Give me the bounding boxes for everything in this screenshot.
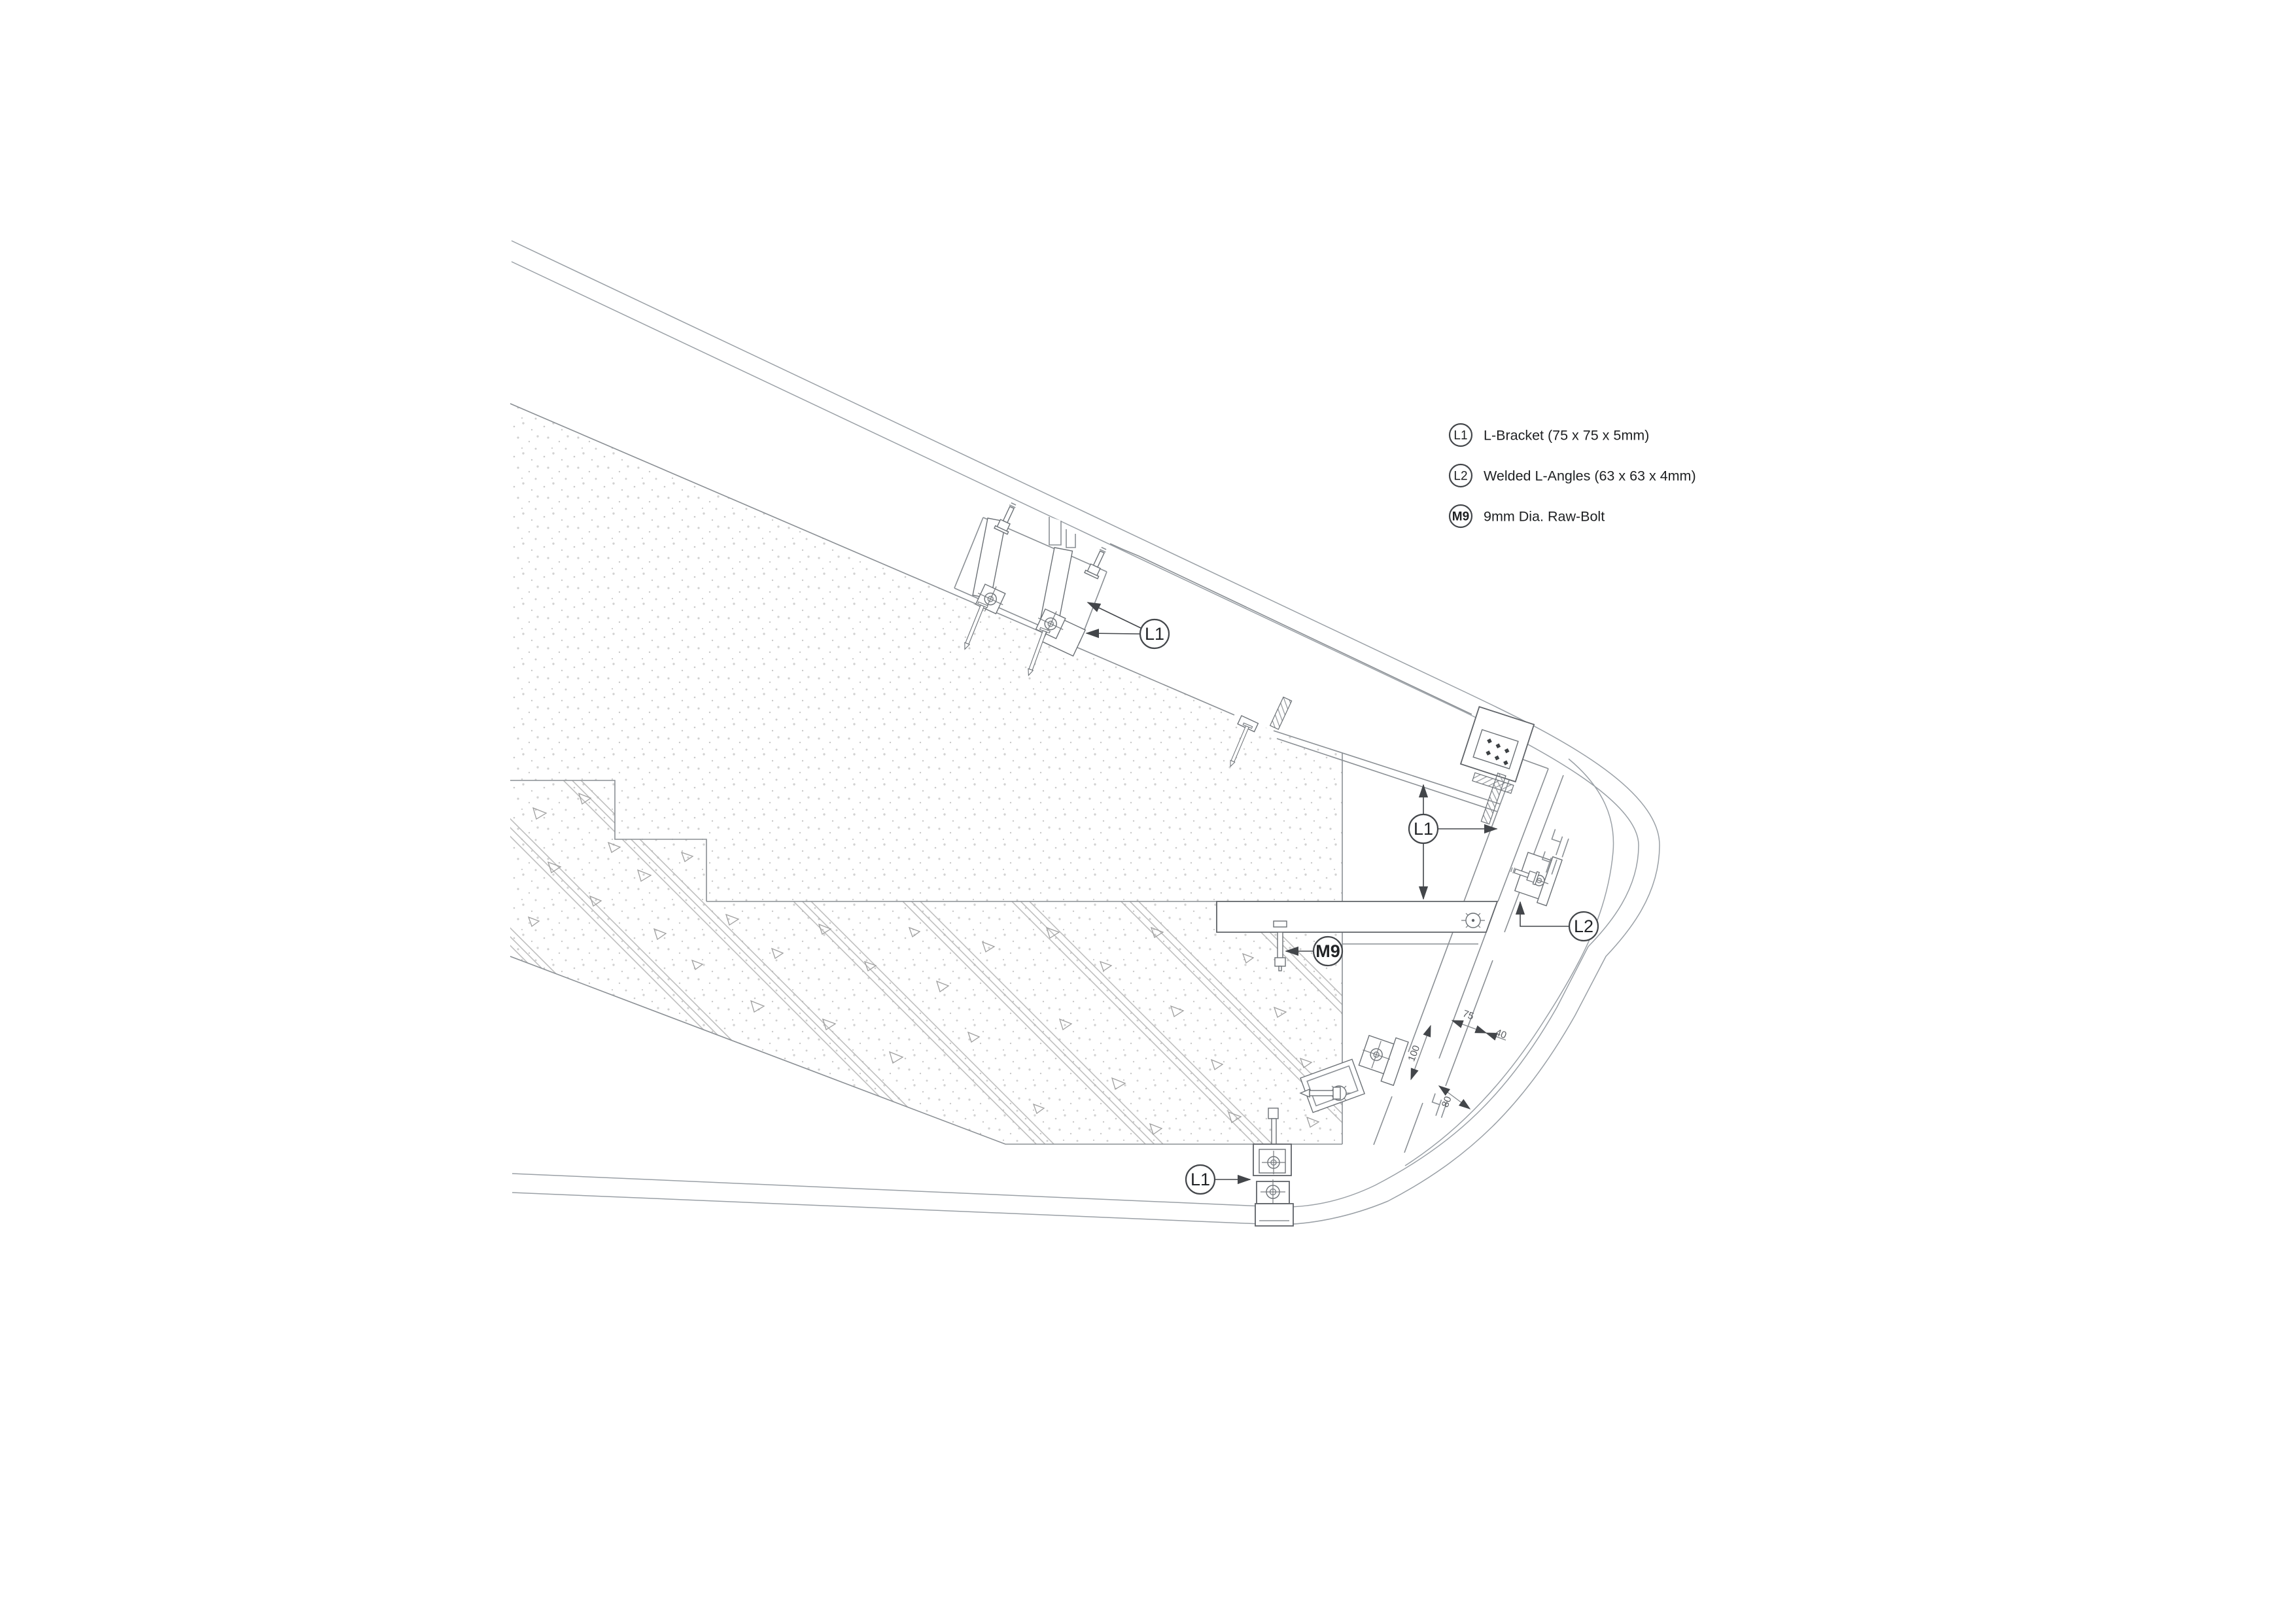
legend-item-m9: M9 9mm Dia. Raw-Bolt	[1450, 505, 1605, 527]
svg-text:75: 75	[1461, 1008, 1475, 1022]
svg-text:L1: L1	[1453, 429, 1467, 443]
dimension-100: 100	[1406, 1026, 1431, 1079]
svg-text:L1: L1	[1145, 624, 1164, 644]
svg-text:Welded L-Angles (63 x 63 x 4mm: Welded L-Angles (63 x 63 x 4mm)	[1484, 468, 1696, 484]
detail-drawing-canvas: 100 75 40 80 L1 L1 L2 M9 L1	[0, 0, 2296, 1623]
svg-text:L2: L2	[1574, 916, 1593, 936]
nose-inner-liner	[1405, 759, 1614, 1166]
callout-l1-top: L1	[1087, 602, 1169, 648]
dimension-75: 75	[1452, 1008, 1486, 1033]
inclined-member	[1374, 758, 1563, 1153]
callout-l1-nose: L1	[1409, 785, 1497, 899]
svg-text:L2: L2	[1453, 470, 1467, 483]
svg-text:M9: M9	[1452, 510, 1469, 524]
svg-text:80: 80	[1440, 1095, 1454, 1109]
stippled-concrete-region	[510, 404, 1342, 901]
svg-text:9mm Dia. Raw-Bolt: 9mm Dia. Raw-Bolt	[1484, 509, 1605, 525]
svg-text:L-Bracket (75 x 75 x 5mm): L-Bracket (75 x 75 x 5mm)	[1484, 428, 1649, 444]
svg-text:L1: L1	[1191, 1170, 1210, 1189]
svg-text:M9: M9	[1315, 941, 1340, 961]
legend-item-l2: L2 Welded L-Angles (63 x 63 x 4mm)	[1450, 464, 1696, 487]
legend-item-l1: L1 L-Bracket (75 x 75 x 5mm)	[1450, 424, 1649, 446]
callout-l1-bottom: L1	[1186, 1165, 1250, 1194]
legend: L1 L-Bracket (75 x 75 x 5mm) L2 Welded L…	[1450, 424, 1696, 527]
svg-text:100: 100	[1406, 1044, 1422, 1063]
svg-text:40: 40	[1494, 1027, 1508, 1041]
callout-l2: L2	[1520, 902, 1598, 941]
drawing-stage: 100 75 40 80 L1 L1 L2 M9 L1	[0, 0, 2296, 1623]
dimension-80: 80	[1439, 1086, 1470, 1109]
dimension-40: 40	[1486, 1027, 1508, 1041]
svg-text:L1: L1	[1414, 819, 1433, 839]
